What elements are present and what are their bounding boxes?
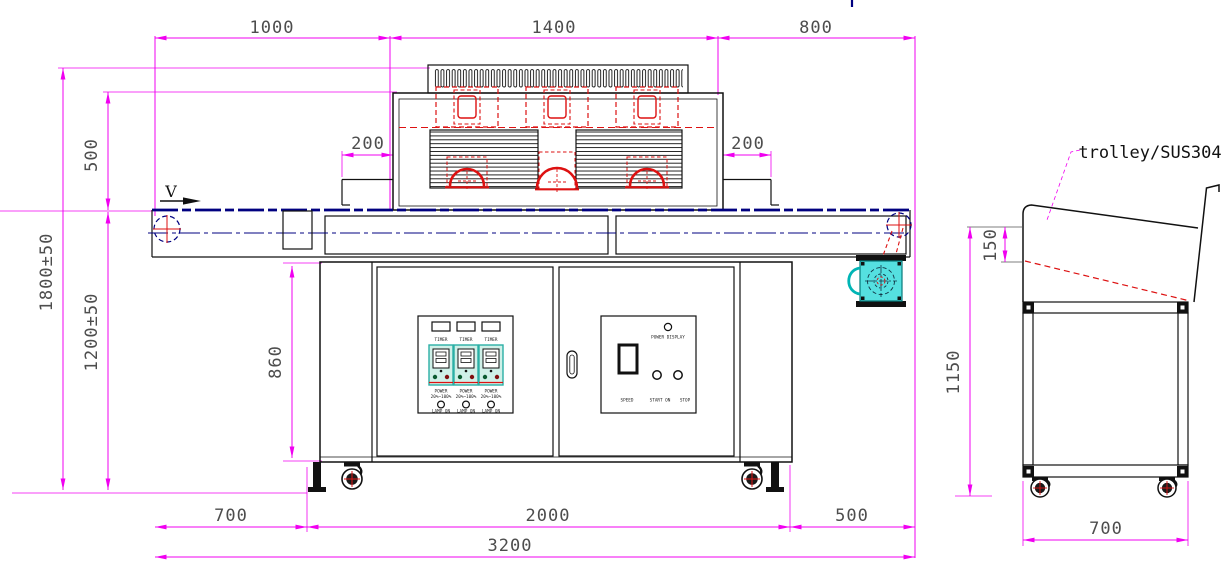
power-label: POWER — [435, 389, 448, 395]
entry-guard — [342, 180, 393, 206]
lamp-indicator — [488, 401, 495, 408]
trolley-caster-left — [1031, 477, 1049, 497]
start-button — [653, 371, 661, 379]
trolley-label: trolley/SUS304 — [1078, 143, 1221, 163]
lamp-indicator — [438, 401, 445, 408]
speed-display-window — [619, 345, 637, 373]
dimension-chain-bottom: 700 2000 500 3200 — [155, 465, 915, 557]
direction-arrow-icon — [183, 197, 201, 204]
lamp-switch-panel: TIMER POWER 20%~100% LAMP ON TIMER — [418, 316, 513, 415]
timer-label: TIMER — [460, 337, 473, 343]
trolley-dimensions: 150 1150 700 — [944, 227, 1188, 546]
reflector-blocks — [430, 130, 682, 188]
drive-motor — [849, 228, 906, 307]
dim-cabinet-height: 860 — [266, 345, 286, 379]
lamp-indicator — [463, 401, 470, 408]
dim-tray-depth: 150 — [981, 228, 1001, 262]
power-range-label: 20%~100% — [481, 394, 502, 400]
trolley-side-view: trolley/SUS304 — [944, 143, 1222, 546]
power-display-indicator — [664, 323, 671, 330]
dim-belt-height: 1200±50 — [82, 293, 102, 372]
motor-bracket — [849, 268, 860, 294]
trolley-caster-right — [1158, 477, 1176, 497]
dim-bottom-left: 700 — [214, 506, 248, 526]
start-on-label: START ON — [650, 398, 671, 404]
lamp-control-2: TIMER POWER 20%~100% LAMP ON — [454, 322, 478, 415]
vent-louvers — [434, 69, 683, 88]
dim-top-left: 1000 — [250, 18, 295, 38]
cabinet-door-right — [559, 267, 734, 456]
adjustable-foot-right — [771, 462, 779, 487]
dim-exit-overhang: 200 — [731, 134, 765, 154]
adjustable-foot-left — [313, 462, 321, 487]
lamp-control-3: TIMER POWER 20%~100% LAMP ON — [479, 322, 503, 415]
power-label: POWER — [460, 389, 473, 395]
motor-mount-top — [856, 255, 906, 261]
belt-direction-indicator: V — [160, 182, 201, 205]
dim-bottom-right: 500 — [835, 506, 869, 526]
stop-button — [674, 371, 682, 379]
dimension-overhangs: 200 200 — [342, 134, 771, 177]
dimension-chain-left: 1800±50 500 1200±50 860 — [0, 68, 430, 493]
caster-left — [342, 462, 362, 489]
power-range-label: 20%~100% — [431, 394, 452, 400]
lamp-on-label: LAMP ON — [457, 409, 476, 415]
trolley-tray — [1023, 185, 1219, 302]
dim-trolley-width: 700 — [1089, 519, 1123, 539]
uv-lamp-2 — [535, 152, 579, 193]
exit-guard — [723, 180, 779, 206]
speed-control-panel: POWER DISPLAY SPEED START ON STOP — [601, 316, 696, 413]
stop-label: STOP — [680, 398, 691, 404]
dim-hood-height: 500 — [82, 138, 102, 172]
lamp-control-1: TIMER POWER 20%~100% LAMP ON — [429, 322, 453, 415]
dim-bottom-middle: 2000 — [526, 506, 571, 526]
cad-canvas: 1000 1400 800 1800±50 500 1200±50 860 20… — [0, 0, 1224, 579]
timer-label: TIMER — [435, 337, 448, 343]
control-cabinet — [320, 262, 792, 462]
dim-overall-length: 3200 — [488, 536, 533, 556]
dim-entry-overhang: 200 — [351, 134, 385, 154]
motor-mount-bottom — [856, 301, 906, 307]
dim-top-right: 800 — [799, 18, 833, 38]
dim-trolley-height: 1150 — [944, 350, 964, 395]
power-display-label: POWER DISPLAY — [651, 335, 685, 341]
lamp-on-label: LAMP ON — [432, 409, 451, 415]
dim-overall-height: 1800±50 — [37, 233, 57, 312]
conveyor — [148, 180, 912, 258]
lamp-on-label: LAMP ON — [482, 409, 501, 415]
caster-right — [742, 462, 762, 489]
timer-label: TIMER — [485, 337, 498, 343]
trolley-frame — [1023, 302, 1188, 477]
speed-label: SPEED — [621, 398, 634, 404]
dim-top-middle: 1400 — [532, 18, 577, 38]
uv-curing-machine-drawing: 1000 1400 800 1800±50 500 1200±50 860 20… — [0, 0, 1224, 579]
power-label: POWER — [485, 389, 498, 395]
belt-direction-label: V — [164, 182, 177, 201]
machine-feet — [308, 462, 784, 492]
power-range-label: 20%~100% — [456, 394, 477, 400]
